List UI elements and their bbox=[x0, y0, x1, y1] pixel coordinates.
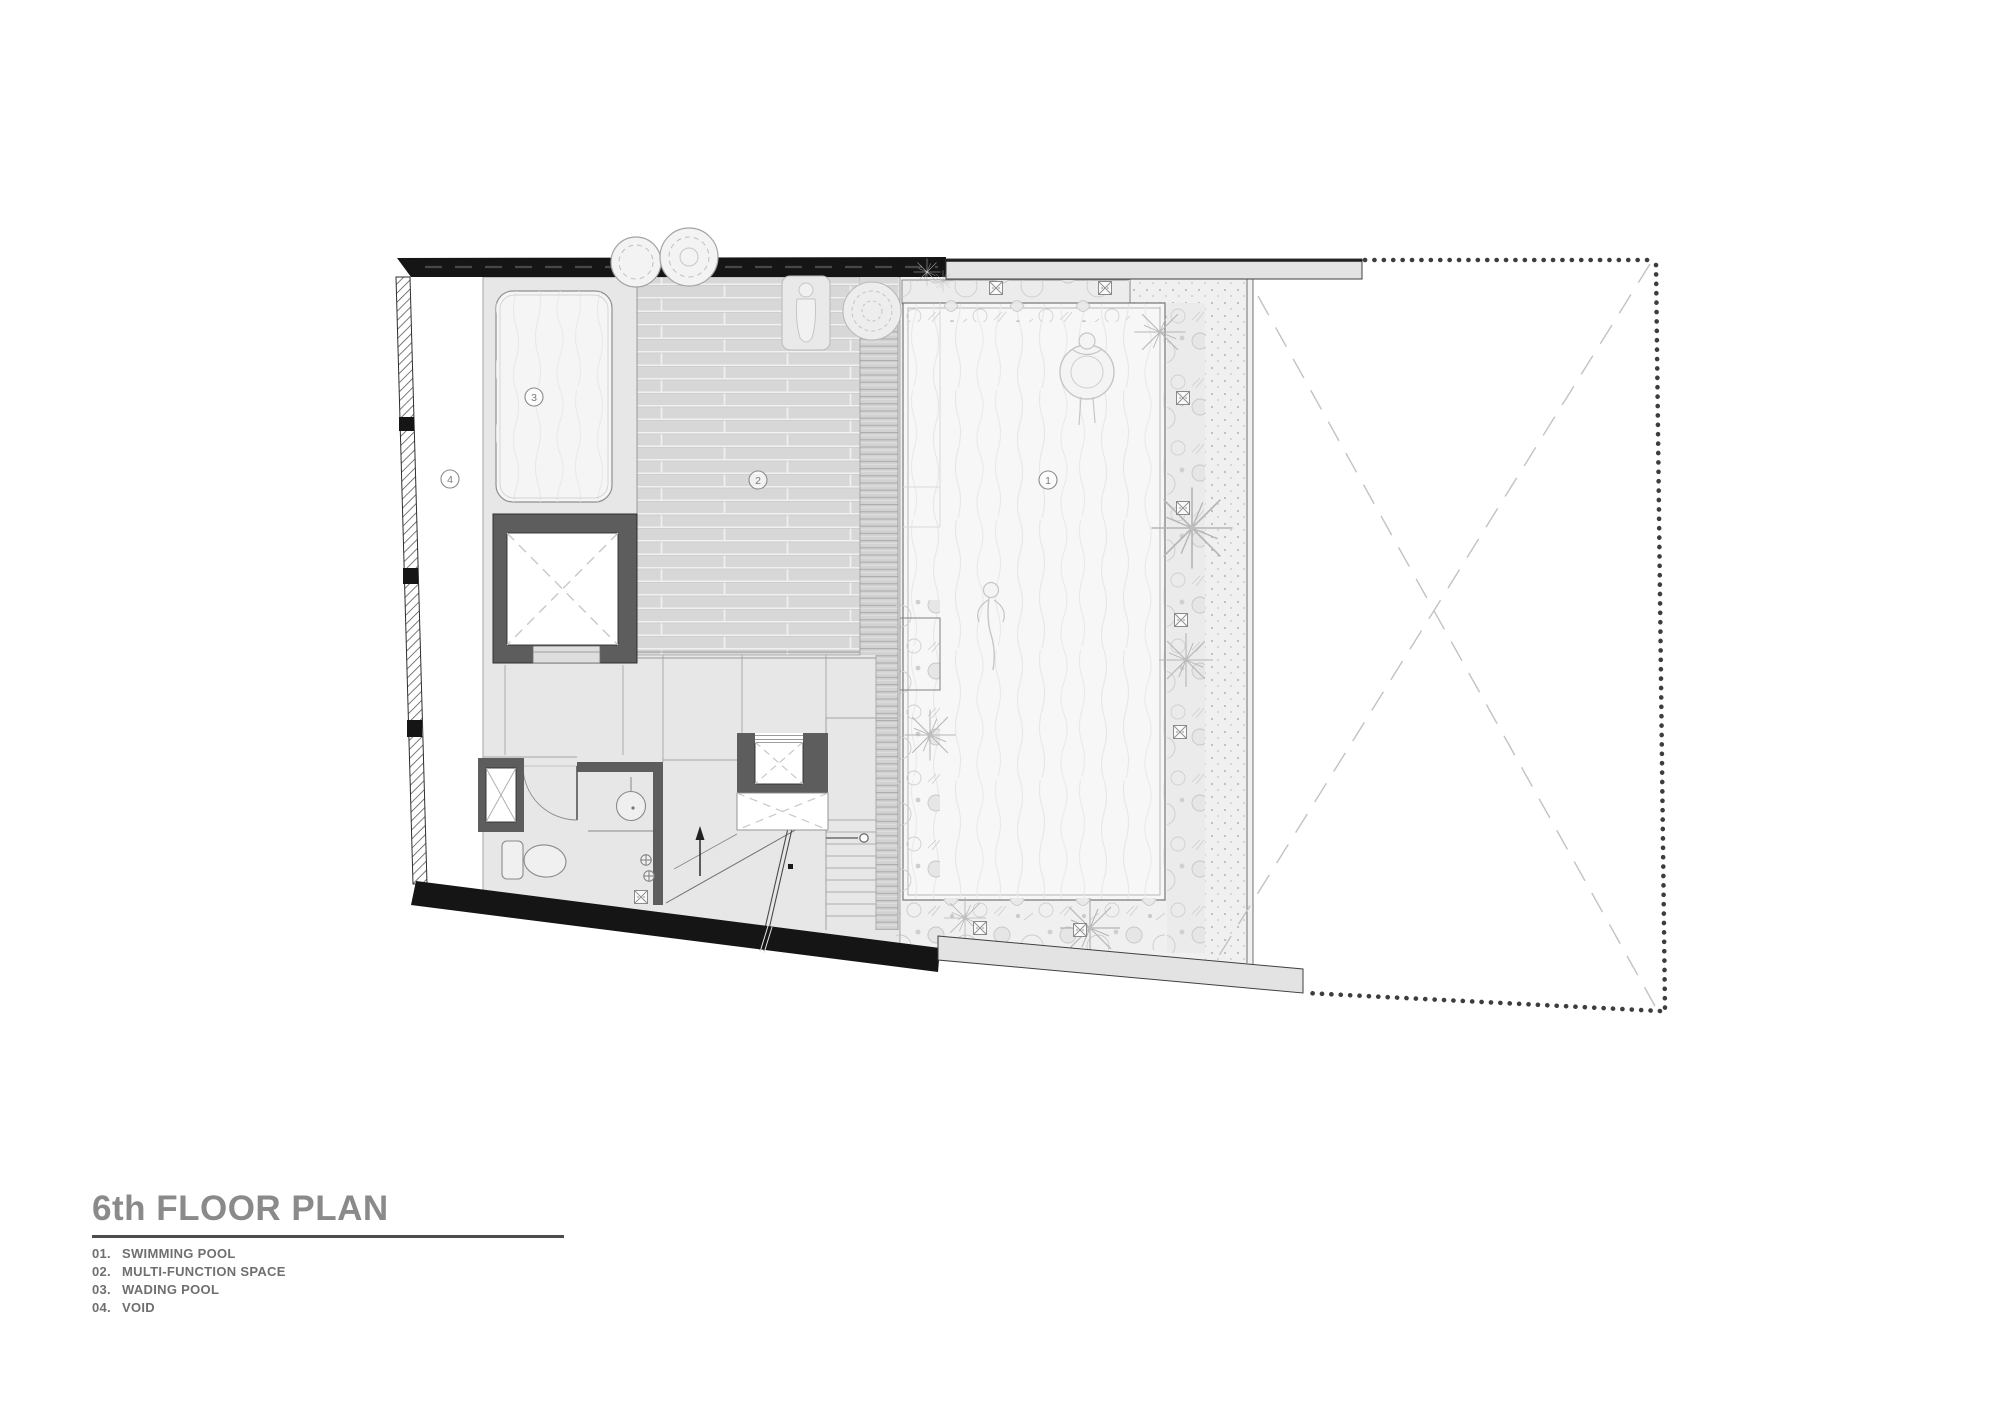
legend-item-void: 04. VOID bbox=[92, 1299, 692, 1317]
page-title: 6th FLOOR PLAN bbox=[92, 1189, 692, 1229]
stair-skylight-box bbox=[737, 793, 828, 830]
swimming-pool bbox=[903, 303, 1165, 900]
plant-table bbox=[843, 282, 901, 340]
legend-item-wading-pool: 03. WADING POOL bbox=[92, 1281, 692, 1299]
legend: 01. SWIMMING POOL 02. MULTI-FUNCTION SPA… bbox=[92, 1245, 692, 1317]
legend-item-swimming-pool: 01. SWIMMING POOL bbox=[92, 1245, 692, 1263]
legend-label: SWIMMING POOL bbox=[122, 1245, 236, 1263]
svg-text:2: 2 bbox=[755, 475, 761, 487]
legend-number: 04. bbox=[92, 1299, 122, 1317]
title-block: 6th FLOOR PLAN 01. SWIMMING POOL 02. MUL… bbox=[92, 1189, 692, 1317]
legend-label: VOID bbox=[122, 1299, 155, 1317]
svg-text:3: 3 bbox=[531, 392, 537, 404]
marker-swimming-pool: 1 bbox=[1039, 471, 1057, 489]
elevator bbox=[493, 514, 637, 663]
marker-void: 4 bbox=[441, 470, 459, 488]
legend-number: 03. bbox=[92, 1281, 122, 1299]
bathroom-wall-right bbox=[653, 762, 663, 905]
void-dashed-x bbox=[1215, 264, 1655, 1006]
svg-text:1: 1 bbox=[1045, 475, 1051, 487]
legend-label: WADING POOL bbox=[122, 1281, 219, 1299]
svg-text:4: 4 bbox=[447, 474, 453, 486]
stair-rail-post bbox=[860, 834, 868, 842]
duct-shaft bbox=[478, 758, 524, 832]
title-underline bbox=[92, 1235, 564, 1238]
legend-label: MULTI-FUNCTION SPACE bbox=[122, 1263, 286, 1281]
elevator-door bbox=[533, 646, 600, 663]
lounger-person bbox=[782, 276, 830, 350]
bathroom-wall-top bbox=[577, 762, 663, 772]
legend-item-multi-function-space: 02. MULTI-FUNCTION SPACE bbox=[92, 1263, 692, 1281]
floor-plan-sheet: 1 2 3 4 6th FLOOR PLAN 01. SWIMMING POOL… bbox=[0, 0, 2000, 1415]
marker-wading-pool: 3 bbox=[525, 388, 543, 406]
wading-pool bbox=[496, 291, 612, 502]
marker-multi-function-space: 2 bbox=[749, 471, 767, 489]
site-boundary-dotted bbox=[1306, 260, 1665, 1011]
legend-number: 02. bbox=[92, 1263, 122, 1281]
gravel-strip bbox=[1205, 278, 1247, 960]
floor-drain bbox=[635, 891, 648, 904]
legend-number: 01. bbox=[92, 1245, 122, 1263]
stair-core-shaft bbox=[737, 733, 828, 793]
